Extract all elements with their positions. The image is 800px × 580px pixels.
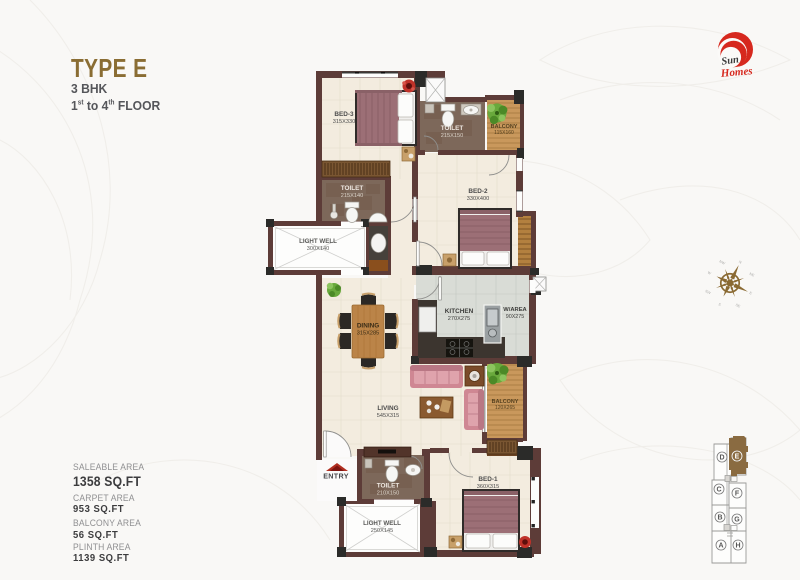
svg-text:330X400: 330X400: [467, 196, 489, 202]
svg-text:B: B: [717, 515, 722, 522]
svg-text:F: F: [735, 491, 740, 498]
svg-text:E: E: [735, 454, 740, 461]
svg-text:BED-3: BED-3: [334, 111, 354, 118]
svg-text:DINING: DINING: [357, 323, 379, 330]
svg-text:115X160: 115X160: [494, 130, 514, 136]
svg-text:210X150: 210X150: [377, 491, 399, 497]
svg-text:90X275: 90X275: [506, 314, 525, 320]
svg-text:120X265: 120X265: [495, 405, 515, 411]
svg-text:250X145: 250X145: [371, 528, 393, 534]
svg-text:BED-1: BED-1: [478, 476, 498, 483]
svg-text:270X275: 270X275: [448, 316, 470, 322]
svg-text:KITCHEN: KITCHEN: [445, 308, 474, 315]
svg-text:TOILET: TOILET: [441, 125, 464, 132]
svg-text:W/AREA: W/AREA: [503, 307, 527, 313]
svg-text:BED-2: BED-2: [468, 188, 488, 195]
svg-text:D: D: [719, 455, 724, 462]
svg-text:A: A: [718, 543, 723, 550]
svg-text:TOILET: TOILET: [341, 185, 364, 192]
svg-text:315X330: 315X330: [333, 119, 355, 125]
svg-text:ENTRY: ENTRY: [323, 472, 349, 481]
svg-text:LIVING: LIVING: [377, 405, 398, 412]
svg-text:H: H: [735, 543, 740, 550]
svg-text:360X315: 360X315: [477, 484, 499, 490]
svg-text:215X150: 215X150: [441, 133, 463, 139]
svg-text:545X315: 545X315: [377, 413, 399, 419]
svg-text:LIGHT WELL: LIGHT WELL: [299, 238, 337, 245]
svg-text:G: G: [734, 517, 740, 524]
svg-text:315X285: 315X285: [357, 331, 379, 337]
svg-text:C: C: [716, 487, 721, 494]
svg-text:LIGHT WELL: LIGHT WELL: [363, 520, 401, 527]
svg-text:300X140: 300X140: [307, 246, 329, 252]
svg-text:TOILET: TOILET: [377, 483, 400, 490]
svg-text:215X140: 215X140: [341, 193, 363, 199]
